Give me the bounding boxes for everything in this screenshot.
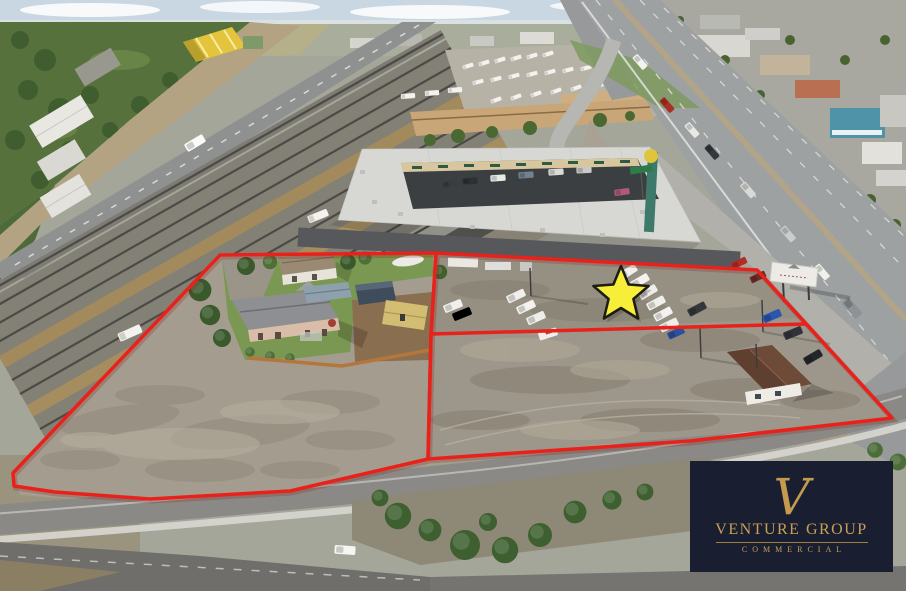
aerial-photo: V VENTURE GROUP COMMERCIAL xyxy=(0,0,906,591)
brand-name: VENTURE GROUP xyxy=(715,521,867,539)
brand-divider xyxy=(716,542,868,543)
brand-tagline: COMMERCIAL xyxy=(737,545,846,554)
brand-monogram: V xyxy=(773,477,809,518)
brand-logo-panel: V VENTURE GROUP COMMERCIAL xyxy=(690,461,893,572)
